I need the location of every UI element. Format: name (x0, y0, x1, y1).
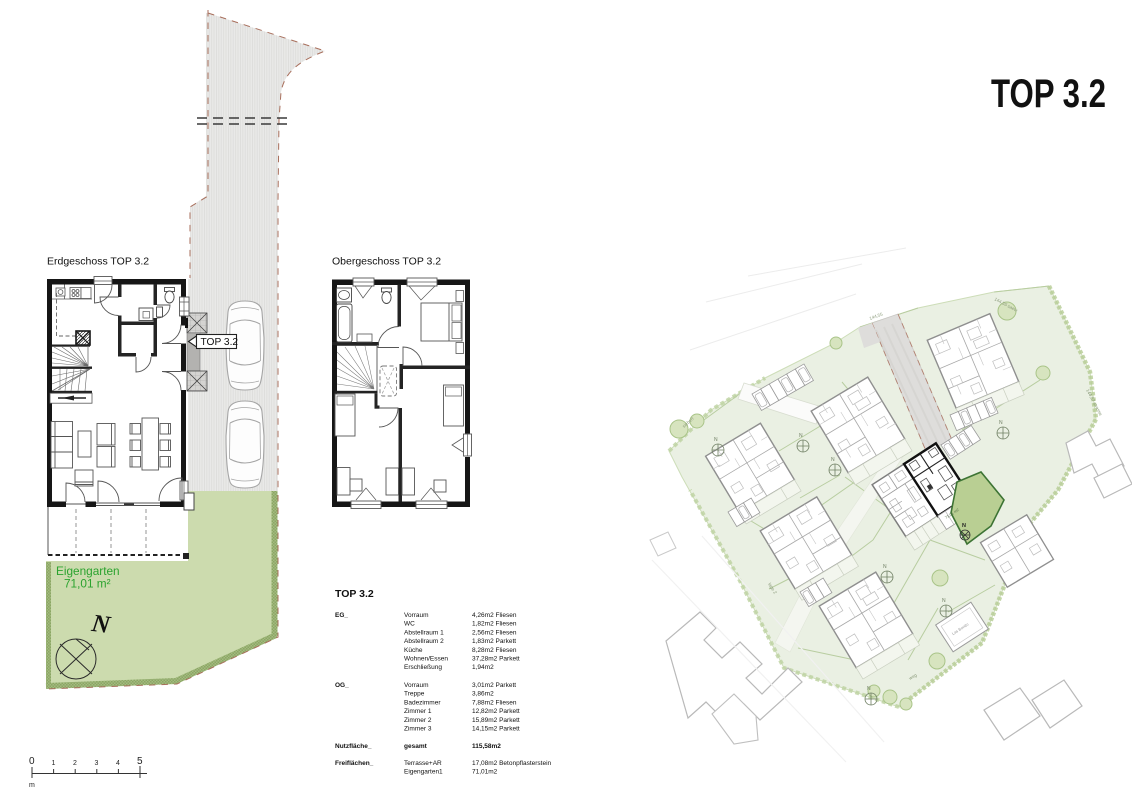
svg-text:17,08m2 Betonpflasterstein: 17,08m2 Betonpflasterstein (472, 760, 552, 767)
svg-text:TOP 3.2: TOP 3.2 (335, 588, 374, 600)
svg-text:Eigengarten1: Eigengarten1 (404, 769, 443, 776)
svg-text:3,86m2: 3,86m2 (472, 691, 494, 698)
svg-text:Küche: Küche (404, 647, 423, 654)
svg-text:N: N (942, 598, 946, 604)
svg-text:7,88m2 Fliesen: 7,88m2 Fliesen (472, 699, 517, 706)
svg-text:WC: WC (404, 621, 415, 628)
svg-text:1,83m2 Parkett: 1,83m2 Parkett (472, 638, 516, 645)
svg-text:Zimmer 3: Zimmer 3 (404, 726, 432, 733)
svg-text:Zimmer 1: Zimmer 1 (404, 708, 432, 715)
svg-text:0: 0 (29, 756, 35, 767)
svg-text:EG_: EG_ (335, 612, 348, 619)
svg-text:Obergeschoss TOP 3.2: Obergeschoss TOP 3.2 (332, 256, 441, 268)
svg-text:N: N (883, 564, 887, 570)
svg-text:Freiflächen_: Freiflächen_ (335, 760, 374, 767)
svg-text:N: N (867, 686, 871, 692)
svg-text:Terrasse+AR: Terrasse+AR (404, 760, 442, 767)
svg-text:Vorraum: Vorraum (404, 682, 429, 689)
svg-text:Abstellraum 1: Abstellraum 1 (404, 629, 444, 636)
svg-text:N: N (831, 457, 835, 463)
svg-text:TOP 3.2: TOP 3.2 (201, 337, 239, 348)
svg-text:Erschließung: Erschließung (404, 664, 442, 671)
svg-text:12,82m2 Parkett: 12,82m2 Parkett (472, 708, 520, 715)
svg-text:71,01m2: 71,01m2 (472, 769, 498, 776)
svg-text:OG_: OG_ (335, 682, 349, 689)
svg-text:14,15m2 Parkett: 14,15m2 Parkett (472, 726, 520, 733)
svg-text:Nutzfläche_: Nutzfläche_ (335, 743, 372, 750)
svg-text:N: N (999, 420, 1003, 426)
svg-text:4: 4 (116, 760, 120, 767)
svg-text:2,56m2 Fliesen: 2,56m2 Fliesen (472, 629, 517, 636)
svg-text:Zimmer 2: Zimmer 2 (404, 717, 432, 724)
svg-text:1,82m2 Fliesen: 1,82m2 Fliesen (472, 621, 517, 628)
svg-text:5: 5 (137, 756, 143, 767)
svg-text:3,01m2 Parkett: 3,01m2 Parkett (472, 682, 516, 689)
svg-text:m: m (29, 782, 35, 789)
svg-text:gesamt: gesamt (404, 743, 428, 750)
svg-text:71,01 m²: 71,01 m² (64, 577, 111, 591)
svg-text:Erdgeschoss TOP 3.2: Erdgeschoss TOP 3.2 (47, 256, 149, 268)
svg-text:2: 2 (73, 760, 77, 767)
svg-text:1,94m2: 1,94m2 (472, 664, 494, 671)
svg-text:Treppe: Treppe (404, 691, 425, 698)
svg-text:Badezimmer: Badezimmer (404, 699, 441, 706)
svg-text:Vorraum: Vorraum (404, 612, 429, 619)
svg-text:4,26m2 Fliesen: 4,26m2 Fliesen (472, 612, 517, 619)
svg-text:3: 3 (95, 760, 99, 767)
svg-text:37,28m2 Parkett: 37,28m2 Parkett (472, 656, 520, 663)
svg-text:Abstellraum 2: Abstellraum 2 (404, 638, 444, 645)
svg-text:1: 1 (52, 760, 56, 767)
svg-text:Wohnen/Essen: Wohnen/Essen (404, 656, 448, 663)
svg-text:N: N (962, 523, 966, 529)
svg-text:N: N (714, 437, 718, 443)
svg-text:115,58m2: 115,58m2 (472, 743, 501, 750)
svg-text:N: N (799, 433, 803, 439)
svg-text:8,28m2 Fliesen: 8,28m2 Fliesen (472, 647, 517, 654)
svg-text:15,89m2 Parkett: 15,89m2 Parkett (472, 717, 520, 724)
svg-text:TOP 3.2: TOP 3.2 (991, 71, 1106, 116)
